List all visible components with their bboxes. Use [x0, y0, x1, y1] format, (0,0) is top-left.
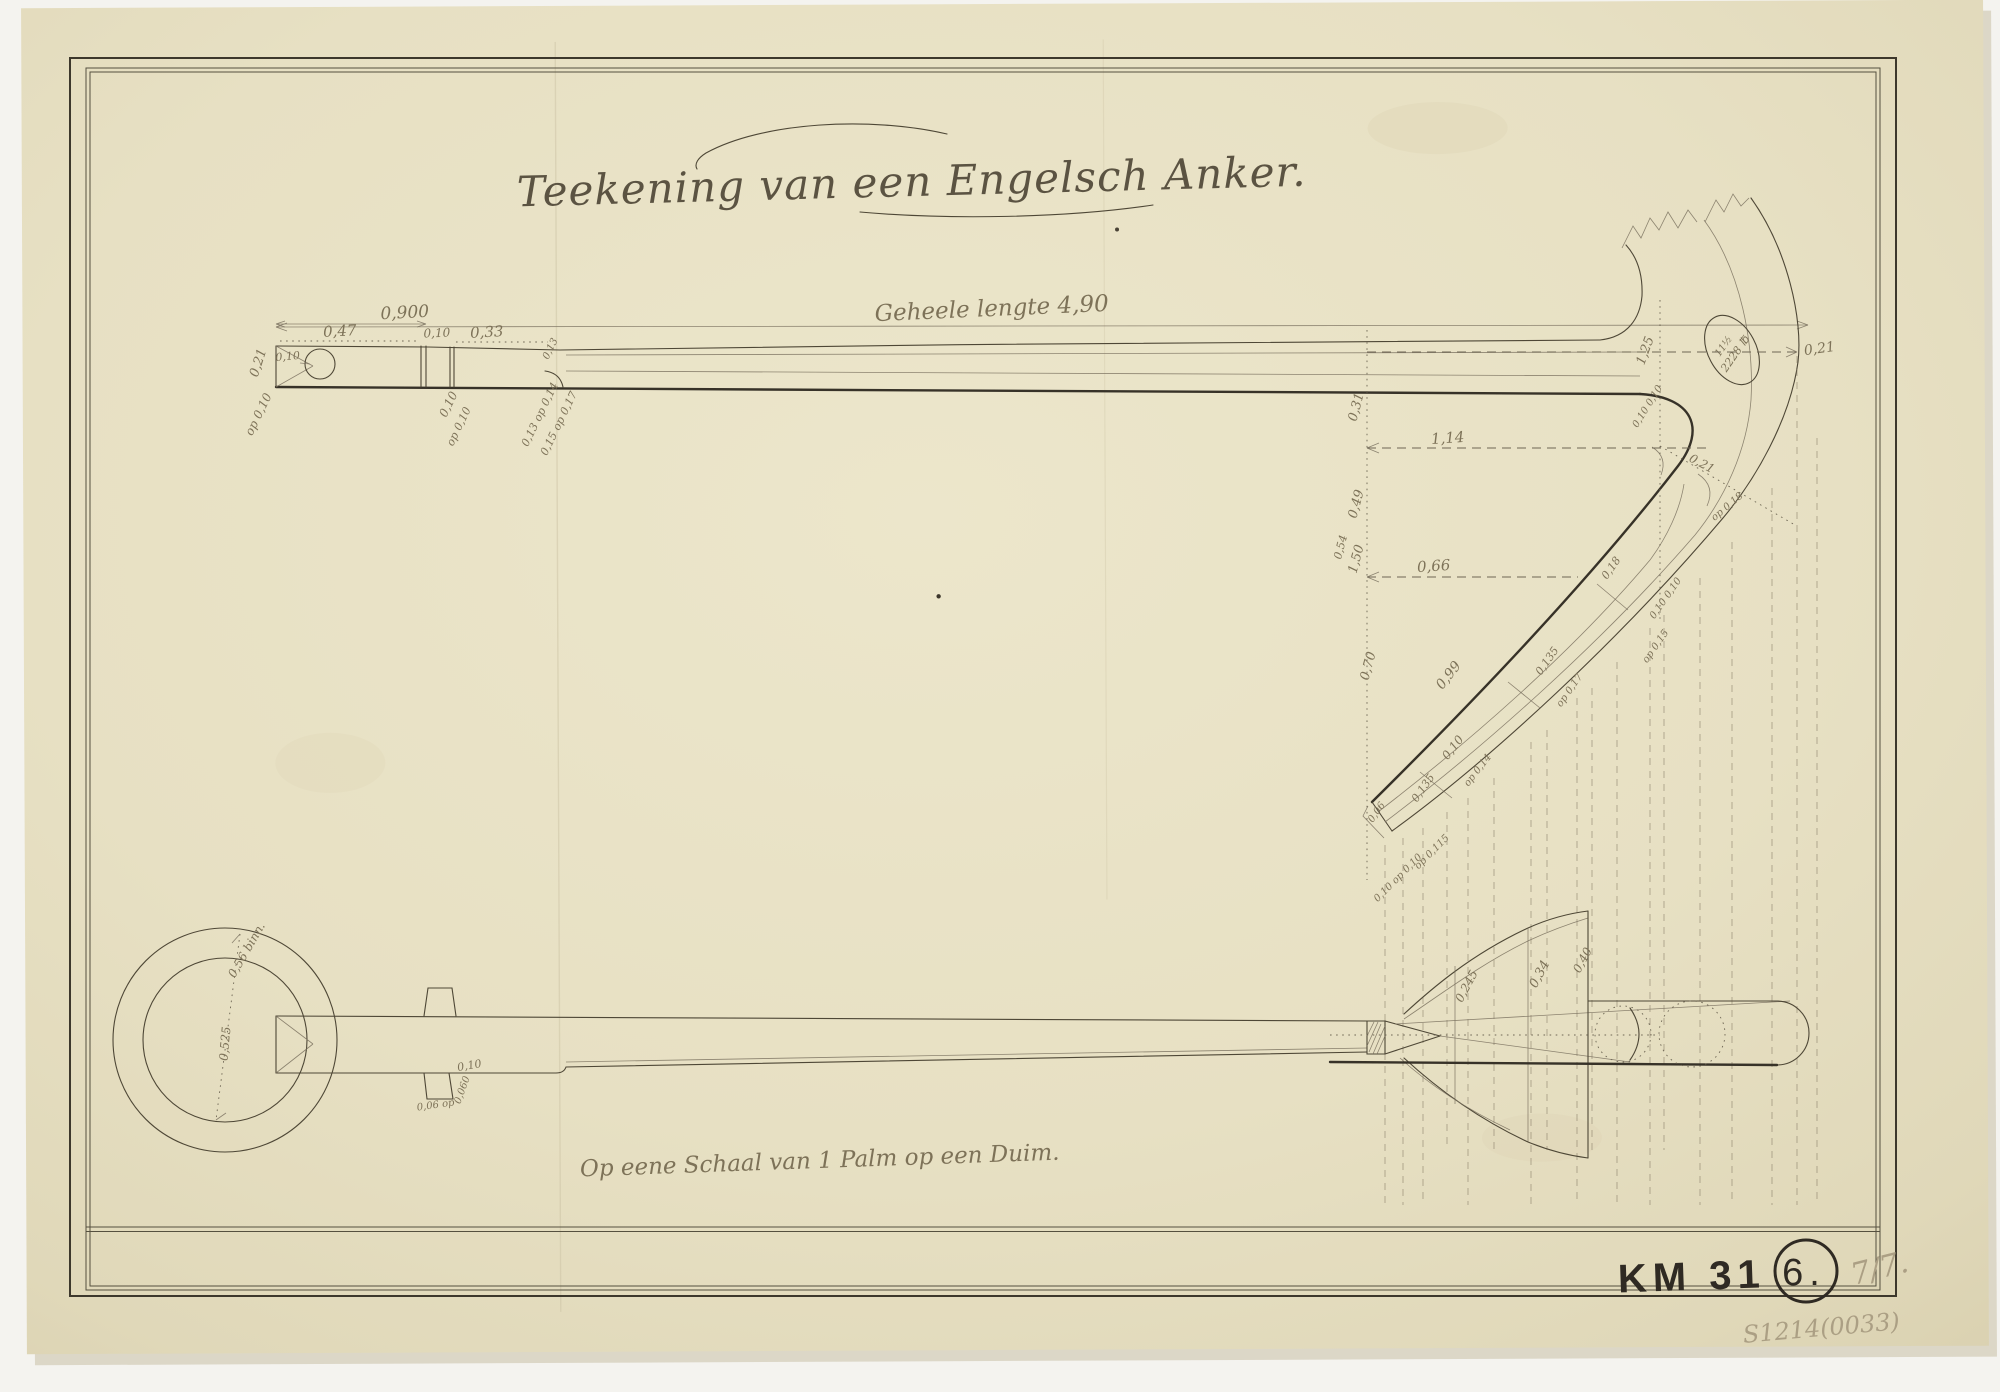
dimension-label: 0,10	[275, 349, 301, 364]
dimension-label: 0,47	[323, 321, 358, 341]
anchor-drawing-sheet: Teekening van een Engelsch Anker. Geheel…	[0, 0, 2000, 1392]
dimension-label: 0,33	[470, 322, 504, 342]
ink-speck	[1115, 227, 1119, 231]
ink-speck	[936, 594, 940, 598]
sheet-number: 6.	[1782, 1252, 1826, 1294]
dimension-label: 0,525	[217, 1026, 234, 1061]
dimension-label: 0,66	[1416, 556, 1451, 576]
dimension-label: 0,10	[423, 326, 451, 341]
inventory-mark: KM 31	[1617, 1252, 1766, 1301]
dimension-label: 0,900	[380, 302, 430, 325]
dimension-label: 1,14	[1430, 428, 1465, 448]
paper-stain	[275, 733, 385, 793]
scanned-drawing-photo: Teekening van een Engelsch Anker. Geheel…	[0, 0, 2000, 1392]
